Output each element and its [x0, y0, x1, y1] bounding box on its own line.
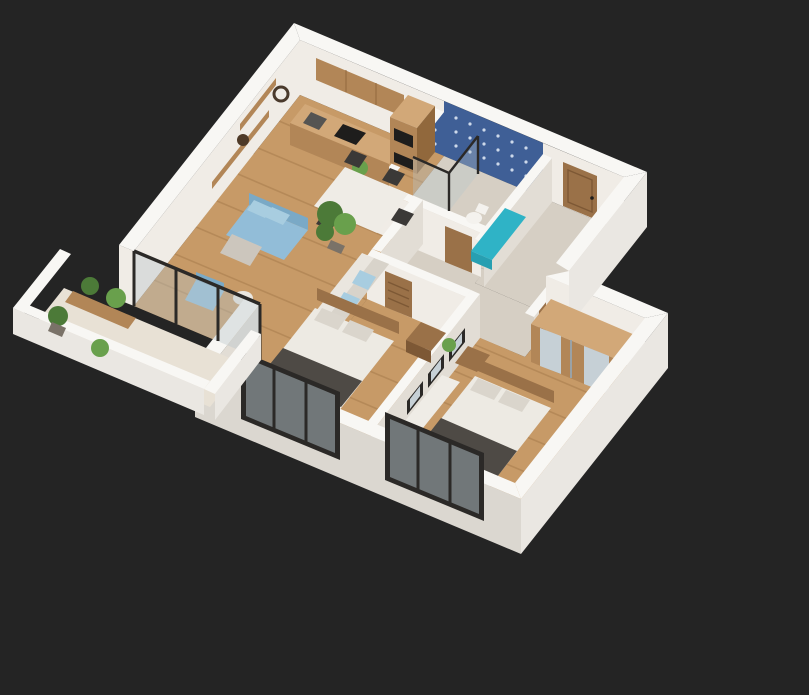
floor-plan-stage	[0, 0, 809, 695]
front-door-handle	[590, 196, 594, 200]
balcony-plant-1	[81, 277, 99, 295]
balcony-plant-4	[91, 339, 109, 357]
wardrobe-mirror-1	[540, 328, 561, 374]
toilet-bowl	[466, 212, 482, 224]
balcony-plant-3	[48, 306, 68, 326]
bed1-plant	[442, 338, 456, 352]
balcony-plant-2	[106, 288, 126, 308]
floor-plan-render	[0, 0, 809, 695]
decor-bowl	[237, 134, 249, 146]
